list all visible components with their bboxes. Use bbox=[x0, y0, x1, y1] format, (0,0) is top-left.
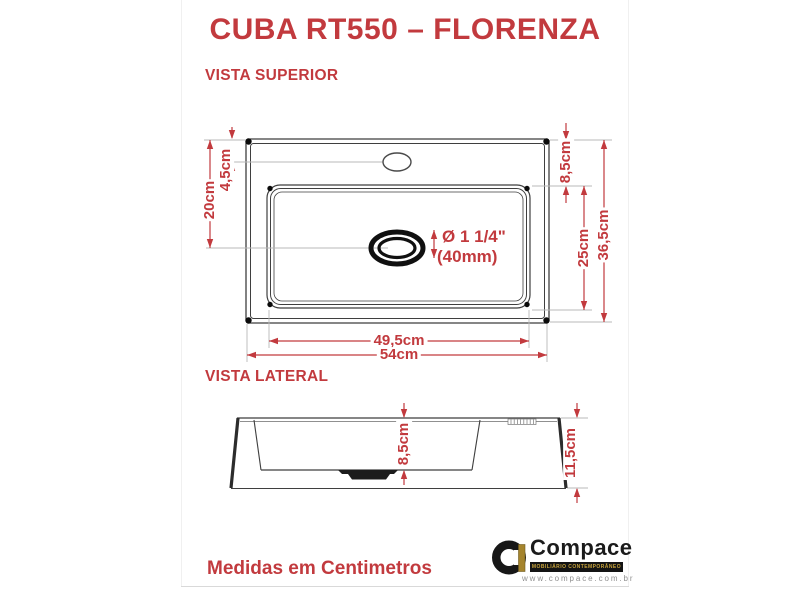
dim-faucet-offset: 4,5cm bbox=[218, 147, 234, 194]
dim-deck-to-basin: 8,5cm bbox=[558, 139, 574, 186]
drain-diameter-mm-label: (40mm) bbox=[437, 247, 497, 267]
top-view-drawing bbox=[204, 123, 612, 362]
dim-basin-height: 8,5cm bbox=[396, 421, 412, 468]
top-view-label: VISTA SUPERIOR bbox=[205, 67, 338, 85]
deck-rib-detail bbox=[508, 419, 536, 425]
dimension-arrowheads-side-view bbox=[401, 409, 580, 497]
dim-drain-from-top: 20cm bbox=[202, 179, 218, 221]
drain-diameter-label: Ø 1 1/4" bbox=[442, 227, 506, 247]
line-art bbox=[0, 0, 810, 590]
compace-logo-icon bbox=[496, 545, 525, 572]
brand-url: www.compace.com.br bbox=[522, 574, 634, 583]
side-view-label: VISTA LATERAL bbox=[205, 368, 328, 386]
product-dimension-diagram: CUBA RT550 – FLORENZA VISTA SUPERIOR 20c… bbox=[0, 0, 810, 590]
drain-stub bbox=[338, 470, 398, 480]
dim-total-width: 54cm bbox=[377, 347, 421, 363]
dim-total-height: 11,5cm bbox=[563, 426, 579, 480]
brand-tagline: MOBILIÁRIO CONTEMPORÂNEO bbox=[530, 562, 623, 572]
faucet-hole bbox=[383, 153, 411, 171]
measurement-unit-note: Medidas em Centimetros bbox=[207, 558, 432, 580]
dim-total-depth: 36,5cm bbox=[596, 208, 612, 263]
page-title: CUBA RT550 – FLORENZA bbox=[0, 13, 810, 47]
brand-name: Compace bbox=[530, 535, 633, 561]
dim-basin-length: 25cm bbox=[576, 227, 592, 269]
